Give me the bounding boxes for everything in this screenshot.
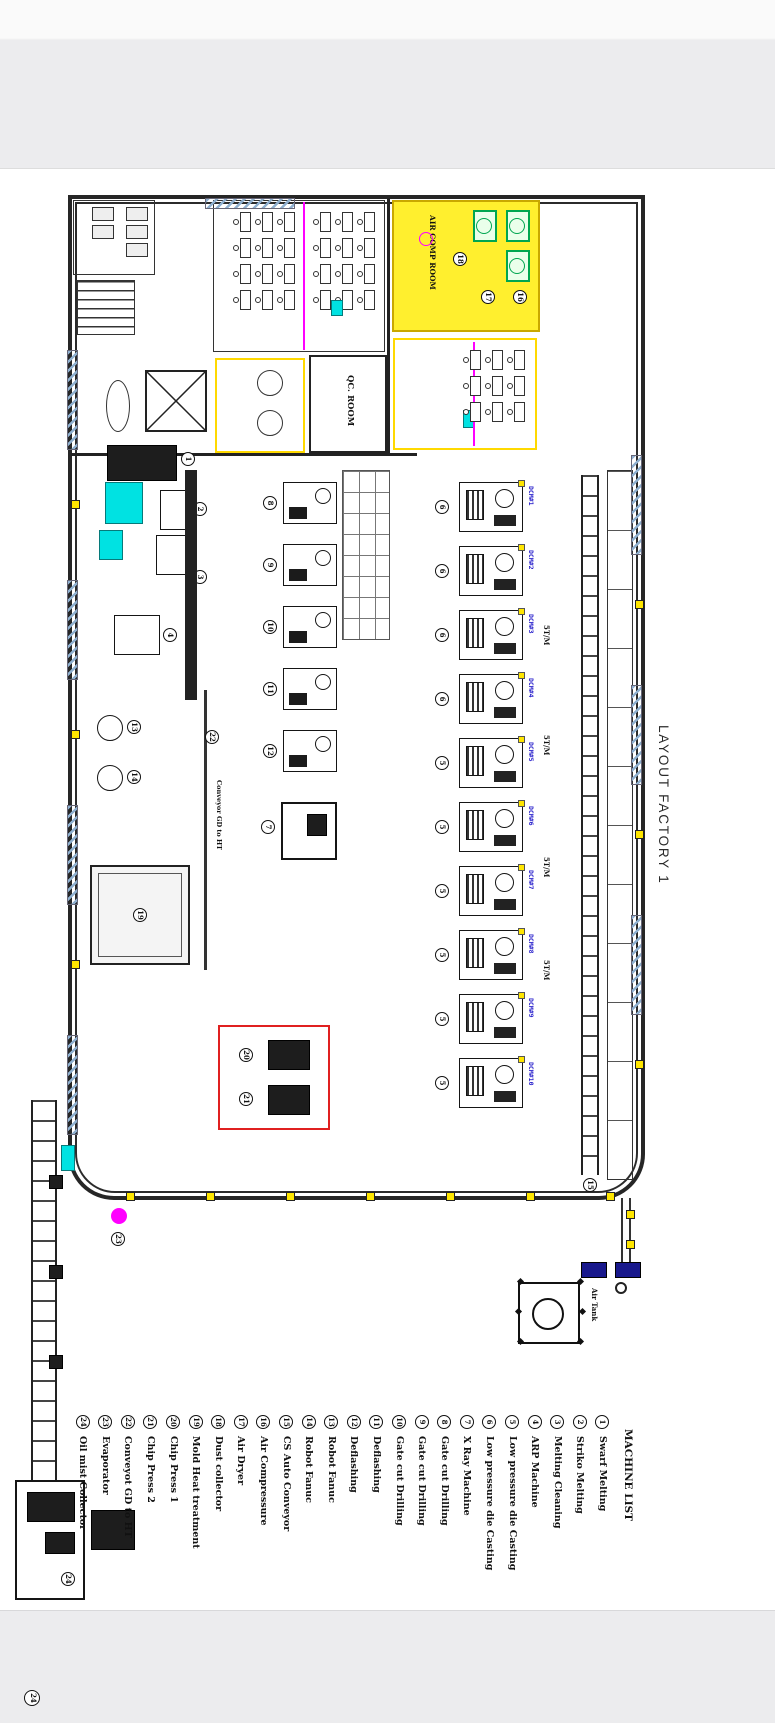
- screenshot-root: LAYOUT FACTORY 1 16 17 18 AIR COMP ROOM …: [0, 0, 775, 1723]
- office-desk: [342, 212, 353, 232]
- office-chair: [485, 409, 491, 415]
- item-number-badge: 17: [234, 1415, 248, 1429]
- die-casting-machine: [459, 930, 523, 980]
- office-desk: [492, 402, 503, 422]
- office-desk: [342, 264, 353, 284]
- air-dryer-unit: [473, 210, 497, 242]
- crane-rail-magenta: [303, 202, 305, 350]
- machine-list-item: 4ARP Machine: [527, 1415, 542, 1508]
- wall-hatch: [205, 198, 295, 209]
- round-meeting-table: [257, 370, 283, 396]
- air-compressor-unit: [506, 210, 530, 242]
- dcm-machine-tag: DCM#2: [527, 550, 535, 570]
- item-number-badge: 11: [263, 682, 277, 696]
- die-casting-machine: [459, 482, 523, 532]
- item-number-badge: 24: [76, 1415, 90, 1429]
- office-chair: [277, 219, 283, 225]
- locker: [92, 225, 114, 239]
- office-desk: [342, 290, 353, 310]
- wall-column-marker: [518, 736, 525, 743]
- wall-column-marker: [526, 1192, 535, 1201]
- machine-list-item-label: Striko Melting: [574, 1436, 585, 1514]
- office-desk: [364, 264, 375, 284]
- chip-press-2: [268, 1085, 310, 1115]
- office-chair: [313, 297, 319, 303]
- machine-list-item-label: Deflashing: [348, 1436, 359, 1493]
- wall-column-marker: [206, 1192, 215, 1201]
- item-number-badge: 19: [189, 1415, 203, 1429]
- machine-list: MACHINE LIST 1Swarf Melting2Striko Melti…: [65, 1415, 640, 1610]
- machine-list-item: 1Swarf Melting: [595, 1415, 610, 1511]
- item-number-badge: 21: [144, 1415, 158, 1429]
- item-number-badge: 10: [263, 620, 277, 634]
- machine-list-item-label: Deflashing: [371, 1436, 382, 1493]
- scan-margin-bottom: [0, 1610, 775, 1723]
- office-chair: [335, 219, 341, 225]
- office-desk: [514, 350, 525, 370]
- machine-list-item: 24Oil mist Collector: [75, 1415, 90, 1530]
- machine-list-items: 1Swarf Melting2Striko Melting3Melting Cl…: [65, 1415, 610, 1610]
- locker: [126, 207, 148, 221]
- wall-column-marker: [126, 1192, 135, 1201]
- round-meeting-table: [257, 410, 283, 436]
- die-casting-machine: [459, 802, 523, 852]
- office-chair: [507, 357, 513, 363]
- machine-core: [466, 746, 484, 776]
- item-number-badge: 3: [550, 1415, 564, 1429]
- office-chair: [357, 219, 363, 225]
- pipe-joint-ring: [615, 1282, 627, 1294]
- office-desk: [364, 212, 375, 232]
- locker: [92, 207, 114, 221]
- machine-list-item-label: Low pressure die Casting: [484, 1436, 495, 1570]
- wall-hatch: [67, 350, 78, 450]
- machining-cell: [283, 730, 337, 772]
- machine-list-item: 3Melting Cleaning: [550, 1415, 565, 1528]
- machine-list-item-label: CS Auto Conveyor: [281, 1436, 292, 1531]
- office-desk: [262, 290, 273, 310]
- item-number-badge: 7: [460, 1415, 474, 1429]
- cyan-equipment-marker: [331, 300, 343, 316]
- machine-list-item-label: Oil mist Collector: [77, 1436, 88, 1530]
- item-number-badge: 5: [435, 884, 449, 898]
- tank-tick: [579, 1308, 586, 1315]
- wall-column-marker: [518, 992, 525, 999]
- die-casting-machine: [459, 546, 523, 596]
- machine-list-item: 5Low pressure die Casting: [505, 1415, 520, 1570]
- machine-list-item-label: Low pressure die Casting: [507, 1436, 518, 1570]
- office-chair: [233, 271, 239, 277]
- machine-list-item-label: Evaporator: [100, 1436, 111, 1495]
- office-chair: [233, 297, 239, 303]
- item-number-badge: 12: [347, 1415, 361, 1429]
- office-chair: [357, 245, 363, 251]
- evaporator-marker: [111, 1208, 127, 1224]
- machine-list-item: 19Mold Heat treatment: [188, 1415, 203, 1549]
- storage-racks: [607, 470, 633, 1180]
- machine-list-item: 23Evaporator: [98, 1415, 113, 1495]
- wall-column-marker: [635, 830, 644, 839]
- air-tank-symbol: [518, 1282, 580, 1344]
- machining-cell: [283, 482, 337, 524]
- xray-machine-core: [307, 814, 327, 836]
- pipe-block: [581, 1262, 607, 1278]
- office-desk: [284, 264, 295, 284]
- item-number-badge: 7: [261, 820, 275, 834]
- office-desk: [284, 238, 295, 258]
- machine-core: [466, 618, 484, 648]
- office-desk: [240, 264, 251, 284]
- dcm-machine-tag: DCM#10: [527, 1062, 535, 1085]
- office-desk: [320, 264, 331, 284]
- item-number-badge: 6: [435, 628, 449, 642]
- machine-core: [466, 1002, 484, 1032]
- office-desk: [320, 238, 331, 258]
- dcm-machine-tag: DCM#4: [527, 678, 535, 698]
- machine-list-item-label: Robot Fanuc: [303, 1436, 314, 1503]
- office-chair: [357, 297, 363, 303]
- item-number-badge: 4: [163, 628, 177, 642]
- machine-list-item: 16Air Compressure: [256, 1415, 271, 1526]
- machine-list-item: 8Gate cut Drilling: [437, 1415, 452, 1526]
- rate-label: 5T/M: [542, 857, 551, 877]
- machine-list-item-label: Mold Heat treatment: [190, 1436, 201, 1549]
- office-chair: [277, 245, 283, 251]
- page-title: LAYOUT FACTORY 1: [656, 725, 671, 885]
- office-desk: [240, 238, 251, 258]
- office-desk: [262, 238, 273, 258]
- wall-column-marker: [518, 864, 525, 871]
- machine-list-item: 17Air Dryer: [233, 1415, 248, 1485]
- office-desk: [470, 350, 481, 370]
- wall-hatch: [631, 915, 642, 1015]
- scan-margin-top: [0, 0, 775, 169]
- wall-column-marker: [635, 600, 644, 609]
- office-chair: [233, 219, 239, 225]
- robot-fanuc: [97, 715, 123, 741]
- item-number-badge: 17: [481, 290, 495, 304]
- machine-list-item: 18Dust collector: [211, 1415, 226, 1511]
- wall-column-marker: [626, 1210, 635, 1219]
- conveyor-roller: [49, 1175, 63, 1189]
- office-desk: [284, 212, 295, 232]
- machine-list-item-label: Chip Press 2: [145, 1436, 156, 1503]
- wall-column-marker: [446, 1192, 455, 1201]
- machine-list-item: 10Gate cut Drilling: [392, 1415, 407, 1526]
- wall-column-marker: [518, 608, 525, 615]
- cyan-conveyor-unit: [61, 1145, 75, 1171]
- office-desk: [364, 238, 375, 258]
- machine-list-item: 15CS Auto Conveyor: [279, 1415, 294, 1531]
- office-desk: [514, 376, 525, 396]
- office-chair: [313, 271, 319, 277]
- wall-column-marker: [366, 1192, 375, 1201]
- shaft-x-box: [145, 370, 207, 432]
- die-casting-machine: [459, 738, 523, 788]
- office-desk: [240, 290, 251, 310]
- machine-list-item-label: Gate cut Drilling: [416, 1436, 427, 1526]
- office-chair: [485, 383, 491, 389]
- dcm-machine-tag: DCM#1: [527, 486, 535, 506]
- swarf-melting-furnace: [107, 445, 177, 481]
- machine-list-header: MACHINE LIST: [622, 1429, 634, 1521]
- machine-list-item: 9Gate cut Drilling: [414, 1415, 429, 1526]
- machining-cell: [283, 544, 337, 586]
- item-number-badge: 2: [573, 1415, 587, 1429]
- wall-column-marker: [606, 1192, 615, 1201]
- wall-column-marker: [71, 960, 80, 969]
- die-casting-machine: [459, 866, 523, 916]
- item-number-badge: 20: [239, 1048, 253, 1062]
- conveyor-roller: [49, 1355, 63, 1369]
- factory-drawing: LAYOUT FACTORY 1 16 17 18 AIR COMP ROOM …: [0, 170, 775, 1610]
- machine-list-item-label: Chip Press 1: [168, 1436, 179, 1503]
- item-number-badge: 11: [370, 1415, 384, 1429]
- office-chair: [507, 383, 513, 389]
- machine-list-item: 11Deflashing: [369, 1415, 384, 1493]
- wall-column-marker: [71, 730, 80, 739]
- wall-hatch: [631, 455, 642, 555]
- wall-hatch: [631, 685, 642, 785]
- machine-list-item: 22Conveyot GD to HT: [120, 1415, 135, 1538]
- rate-label: 5T/M: [542, 960, 551, 980]
- office-desk: [320, 290, 331, 310]
- office-chair: [255, 297, 261, 303]
- office-desk: [284, 290, 295, 310]
- item-number-badge: 6: [435, 692, 449, 706]
- machine-list-item: 6Low pressure die Casting: [482, 1415, 497, 1570]
- item-number-badge: 23: [98, 1415, 112, 1429]
- item-number-badge: 5: [435, 1076, 449, 1090]
- item-number-badge: 21: [239, 1092, 253, 1106]
- office-chair: [463, 409, 469, 415]
- gd-ht-conveyor-note: Conveyor GD to HT: [215, 780, 223, 850]
- air-compressor-unit: [506, 250, 530, 282]
- item-number-badge: 4: [528, 1415, 542, 1429]
- cyan-melting-unit: [105, 482, 143, 524]
- item-number-badge: 18: [453, 252, 467, 266]
- office-chair: [463, 357, 469, 363]
- machine-list-item: 7X Ray Machine: [459, 1415, 474, 1516]
- machine-list-item: 20Chip Press 1: [166, 1415, 181, 1503]
- rate-label: 5T/M: [542, 735, 551, 755]
- machine-core: [466, 1066, 484, 1096]
- air-comp-room-label: AIR COMP ROOM: [428, 215, 437, 290]
- item-number-badge: 1: [596, 1415, 610, 1429]
- item-number-badge: 5: [505, 1415, 519, 1429]
- office-chair: [357, 271, 363, 277]
- machine-core: [466, 490, 484, 520]
- wall-column-marker: [518, 800, 525, 807]
- item-number-badge: 5: [435, 820, 449, 834]
- item-number-badge: 19: [133, 908, 147, 922]
- item-number-badge: 16: [513, 290, 527, 304]
- item-number-badge: 13: [324, 1415, 338, 1429]
- office-chair: [255, 271, 261, 277]
- pallet-grid: [342, 470, 390, 640]
- machining-cell: [283, 668, 337, 710]
- office-desk: [320, 212, 331, 232]
- machine-list-item-label: Air Compressure: [258, 1436, 269, 1526]
- dcm-machine-tag: DCM#7: [527, 870, 535, 890]
- item-number-badge: 14: [302, 1415, 316, 1429]
- item-number-badge: 5: [435, 948, 449, 962]
- oval-conference-table: [106, 380, 130, 432]
- item-number-badge: 15: [583, 1178, 597, 1192]
- machine-list-item: 21Chip Press 2: [143, 1415, 158, 1503]
- office-chair: [463, 383, 469, 389]
- wall-column-marker: [286, 1192, 295, 1201]
- machine-list-item-label: ARP Machine: [529, 1436, 540, 1508]
- office-chair: [335, 271, 341, 277]
- machine-list-item-label: Gate cut Drilling: [394, 1436, 405, 1526]
- item-number-badge: 13: [127, 720, 141, 734]
- item-number-badge: 23: [111, 1232, 125, 1246]
- qc-room-label: QC. ROOM: [345, 375, 355, 426]
- locker: [126, 243, 148, 257]
- office-desk: [342, 238, 353, 258]
- die-casting-machine: [459, 674, 523, 724]
- machine-list-item-label: Swarf Melting: [597, 1436, 608, 1511]
- dcm-machine-tag: DCM#6: [527, 806, 535, 826]
- meeting-room: [215, 358, 305, 453]
- machine-core: [466, 554, 484, 584]
- office-chair: [507, 409, 513, 415]
- machine-list-item-label: X Ray Machine: [461, 1436, 472, 1516]
- item-number-badge: 1: [181, 452, 195, 466]
- dcm-machine-tag: DCM#9: [527, 998, 535, 1018]
- machine-list-item-label: Conveyot GD to HT: [122, 1436, 133, 1538]
- office-desk: [240, 212, 251, 232]
- office-desk: [514, 402, 525, 422]
- pipe-block: [615, 1262, 641, 1278]
- chip-press-1: [268, 1040, 310, 1070]
- dcm-machine-tag: DCM#5: [527, 742, 535, 762]
- exit-conveyor: [31, 1100, 57, 1480]
- item-number-badge: 24: [24, 1690, 40, 1706]
- office-desk: [470, 376, 481, 396]
- item-number-badge: 6: [435, 500, 449, 514]
- wall-column-marker: [626, 1240, 635, 1249]
- item-number-badge: 5: [435, 756, 449, 770]
- wall-hatch: [67, 580, 78, 680]
- locker: [126, 225, 148, 239]
- machine-core: [466, 938, 484, 968]
- office-wall-horizontal: [387, 198, 390, 456]
- dcm-machine-tag: DCM#3: [527, 614, 535, 634]
- machine-list-item-label: Gate cut Drilling: [439, 1436, 450, 1526]
- item-number-badge: 22: [121, 1415, 135, 1429]
- air-tank-label: Air Tank: [590, 1288, 599, 1321]
- die-casting-machine: [459, 994, 523, 1044]
- office-chair: [335, 245, 341, 251]
- office-chair: [255, 219, 261, 225]
- die-casting-machine: [459, 1058, 523, 1108]
- arp-machine: [114, 615, 160, 655]
- chip-conveyor-band: [185, 470, 197, 700]
- machine-list-item: 12Deflashing: [346, 1415, 361, 1493]
- item-number-badge: 14: [127, 770, 141, 784]
- robot-fanuc: [97, 765, 123, 791]
- machine-list-item-label: Robot Fanuc: [326, 1436, 337, 1503]
- machine-core: [466, 810, 484, 840]
- office-chair: [313, 219, 319, 225]
- machine-list-item-label: Air Dryer: [235, 1436, 246, 1485]
- wall-column-marker: [71, 500, 80, 509]
- dcm-machine-tag: DCM#8: [527, 934, 535, 954]
- item-number-badge: 22: [205, 730, 219, 744]
- wall-column-marker: [518, 672, 525, 679]
- item-number-badge: 6: [435, 564, 449, 578]
- wall-hatch: [67, 1035, 78, 1135]
- wall-column-marker: [518, 544, 525, 551]
- office-desk: [364, 290, 375, 310]
- item-number-badge: 10: [392, 1415, 406, 1429]
- office-chair: [485, 357, 491, 363]
- item-number-badge: 16: [257, 1415, 271, 1429]
- staircase: [77, 280, 135, 335]
- machine-list-item-label: Dust collector: [213, 1436, 224, 1511]
- wall-hatch: [67, 805, 78, 905]
- item-number-badge: 18: [211, 1415, 225, 1429]
- item-number-badge: 8: [437, 1415, 451, 1429]
- item-number-badge: 20: [166, 1415, 180, 1429]
- die-casting-machine: [459, 610, 523, 660]
- office-desk: [470, 402, 481, 422]
- item-number-badge: 9: [415, 1415, 429, 1429]
- machine-list-item: 2Striko Melting: [572, 1415, 587, 1514]
- office-chair: [277, 271, 283, 277]
- machine-core: [466, 682, 484, 712]
- item-number-badge: 15: [279, 1415, 293, 1429]
- machine-list-item: 14Robot Fanuc: [301, 1415, 316, 1503]
- office-chair: [233, 245, 239, 251]
- office-desk: [492, 350, 503, 370]
- magenta-circle-marker: [419, 232, 433, 246]
- wall-column-marker: [518, 928, 525, 935]
- cyan-melting-unit: [99, 530, 123, 560]
- office-desk: [492, 376, 503, 396]
- machine-list-item-label: Melting Cleaning: [552, 1436, 563, 1528]
- cs-auto-conveyor: [581, 475, 599, 1175]
- machine-core: [466, 874, 484, 904]
- wall-column-marker: [518, 1056, 525, 1063]
- conveyor-roller: [49, 1265, 63, 1279]
- rate-label: 5T/M: [542, 625, 551, 645]
- locker-room: [73, 200, 155, 275]
- office-chair: [313, 245, 319, 251]
- item-number-badge: 6: [483, 1415, 497, 1429]
- wall-column-marker: [635, 1060, 644, 1069]
- item-number-badge: 9: [263, 558, 277, 572]
- office-desk: [262, 264, 273, 284]
- office-desk: [262, 212, 273, 232]
- machining-cell: [283, 606, 337, 648]
- item-number-badge: 5: [435, 1012, 449, 1026]
- machine-list-item: 13Robot Fanuc: [324, 1415, 339, 1503]
- item-number-badge: 12: [263, 744, 277, 758]
- office-chair: [255, 245, 261, 251]
- item-number-badge: 8: [263, 496, 277, 510]
- office-chair: [277, 297, 283, 303]
- wall-column-marker: [518, 480, 525, 487]
